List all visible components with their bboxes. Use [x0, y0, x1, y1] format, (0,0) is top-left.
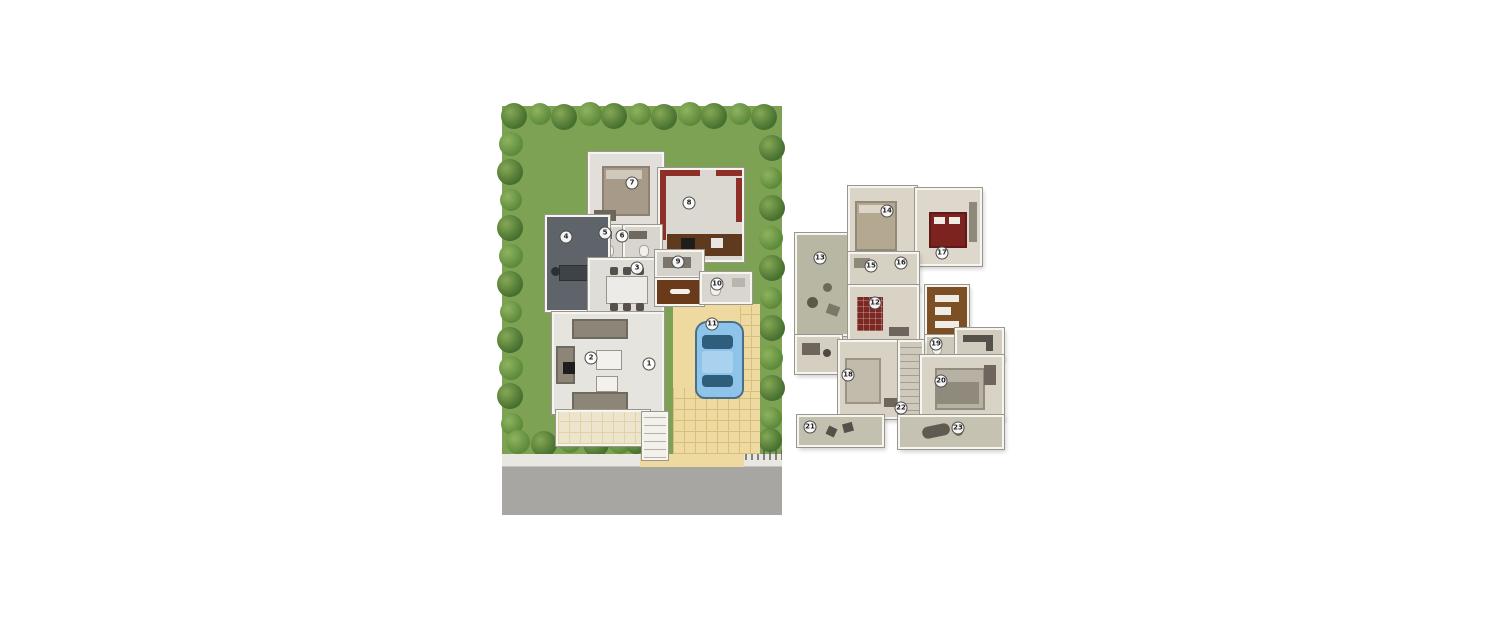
- balcony-chair: [826, 426, 838, 438]
- tree: [760, 287, 782, 309]
- lounge-seat: [921, 422, 951, 440]
- kitchen-wall-red-north2: [716, 170, 742, 176]
- porch-tiles: [558, 412, 648, 444]
- room-number-12: 12: [869, 297, 882, 310]
- tree: [500, 301, 522, 323]
- plant: [807, 297, 818, 308]
- first-floor-plan: 121314151617181920212223: [793, 183, 1005, 447]
- car: [695, 321, 744, 399]
- tree: [759, 255, 785, 281]
- tree: [497, 271, 523, 297]
- car-roof: [702, 351, 733, 373]
- room-number-16: 16: [895, 257, 908, 270]
- tree: [499, 244, 523, 268]
- dining-chair: [623, 303, 631, 311]
- room-number-7: 7: [626, 177, 639, 190]
- tree: [578, 102, 602, 126]
- kitchen-sink: [711, 238, 723, 248]
- room-number-13: 13: [814, 252, 827, 265]
- room-number-5: 5: [599, 227, 612, 240]
- room-number-15: 15: [865, 260, 878, 273]
- room-number-20: 20: [935, 375, 948, 388]
- room-number-1: 1: [643, 358, 656, 371]
- canvas: { "canvas": {"width": 1500, "height": 62…: [0, 0, 1500, 625]
- door-handle-plate: [670, 289, 690, 294]
- toilet: [639, 245, 649, 257]
- bedroom-upper-left: [848, 186, 917, 256]
- room-number-2: 2: [585, 352, 598, 365]
- side-table: [596, 376, 618, 392]
- bedroom-upper-right: [915, 188, 982, 266]
- tree: [529, 103, 551, 125]
- dresser: [984, 365, 996, 385]
- bed-pillow: [934, 217, 945, 224]
- road: [502, 466, 782, 515]
- verandah-porch: [556, 410, 650, 446]
- room-number-8: 8: [683, 197, 696, 210]
- tree: [499, 132, 523, 156]
- study-lower-left: [795, 335, 842, 374]
- chair: [823, 349, 831, 357]
- guest-toilet: [700, 272, 752, 304]
- room-number-14: 14: [881, 205, 894, 218]
- sofa-bottom: [572, 392, 628, 412]
- bed: [602, 166, 650, 216]
- dining-table: [606, 276, 648, 304]
- car-windshield: [702, 335, 733, 349]
- vanity-counter: [629, 231, 647, 239]
- kitchen-wall-red-north: [660, 170, 700, 176]
- bed-pillow: [949, 217, 960, 224]
- coffee-table: [596, 350, 622, 370]
- room-number-6: 6: [616, 230, 629, 243]
- bedroom-lower-right: [920, 355, 1004, 419]
- central-hall: [848, 285, 919, 344]
- room-number-4: 4: [560, 231, 573, 244]
- site-plan-ground-floor: 1234567891011: [502, 106, 782, 514]
- tv-unit: [563, 362, 575, 374]
- tree: [551, 104, 577, 130]
- tree: [751, 104, 777, 130]
- balcony-lower-right: [898, 415, 1004, 449]
- counter: [935, 321, 959, 328]
- room-number-22: 22: [895, 402, 908, 415]
- wardrobe: [969, 202, 977, 242]
- patio-chair: [826, 303, 841, 317]
- dining-chair: [610, 267, 618, 275]
- tree: [651, 104, 677, 130]
- tree: [759, 195, 785, 221]
- room-number-10: 10: [711, 278, 724, 291]
- tree: [497, 215, 523, 241]
- tree: [500, 189, 522, 211]
- stove: [681, 238, 695, 250]
- dining-chair: [636, 303, 644, 311]
- sofa-top: [572, 319, 628, 339]
- bed-red: [929, 212, 967, 248]
- balcony-chair: [842, 422, 854, 433]
- counter: [935, 307, 951, 315]
- plant: [823, 283, 832, 292]
- room-number-9: 9: [672, 256, 685, 269]
- tree: [759, 375, 785, 401]
- tree: [758, 428, 782, 452]
- tree: [759, 135, 785, 161]
- main-entrance-door: [655, 278, 704, 306]
- room-number-19: 19: [930, 338, 943, 351]
- tree: [759, 315, 785, 341]
- tree: [729, 103, 751, 125]
- tree: [497, 383, 523, 409]
- bath-counter-l2: [986, 335, 993, 351]
- terrace-left: [795, 233, 852, 336]
- tree: [499, 356, 523, 380]
- room-number-11: 11: [706, 318, 719, 331]
- passage-hall: [848, 252, 919, 289]
- room-number-17: 17: [936, 247, 949, 260]
- dining-chair: [610, 303, 618, 311]
- kitchen: [658, 168, 744, 262]
- tree: [759, 346, 783, 370]
- room-number-3: 3: [631, 262, 644, 275]
- tree: [501, 103, 527, 129]
- tree: [759, 226, 783, 250]
- kitchen-wall-red-east: [736, 178, 742, 222]
- tree: [678, 102, 702, 126]
- washbasin: [732, 278, 745, 287]
- tree: [629, 103, 651, 125]
- tree: [760, 407, 782, 429]
- tree: [497, 327, 523, 353]
- tree: [497, 159, 523, 185]
- tree: [506, 430, 530, 454]
- tree: [701, 103, 727, 129]
- entrance-steps: [642, 412, 668, 460]
- tree: [601, 103, 627, 129]
- counter: [935, 295, 959, 302]
- desk-chair: [551, 267, 560, 276]
- desk: [802, 343, 820, 355]
- room-number-23: 23: [952, 422, 965, 435]
- sideboard: [889, 327, 909, 336]
- dining-room: [588, 258, 664, 318]
- car-rear-window: [702, 375, 733, 387]
- room-number-18: 18: [842, 369, 855, 382]
- room-number-21: 21: [804, 421, 817, 434]
- tree: [760, 167, 782, 189]
